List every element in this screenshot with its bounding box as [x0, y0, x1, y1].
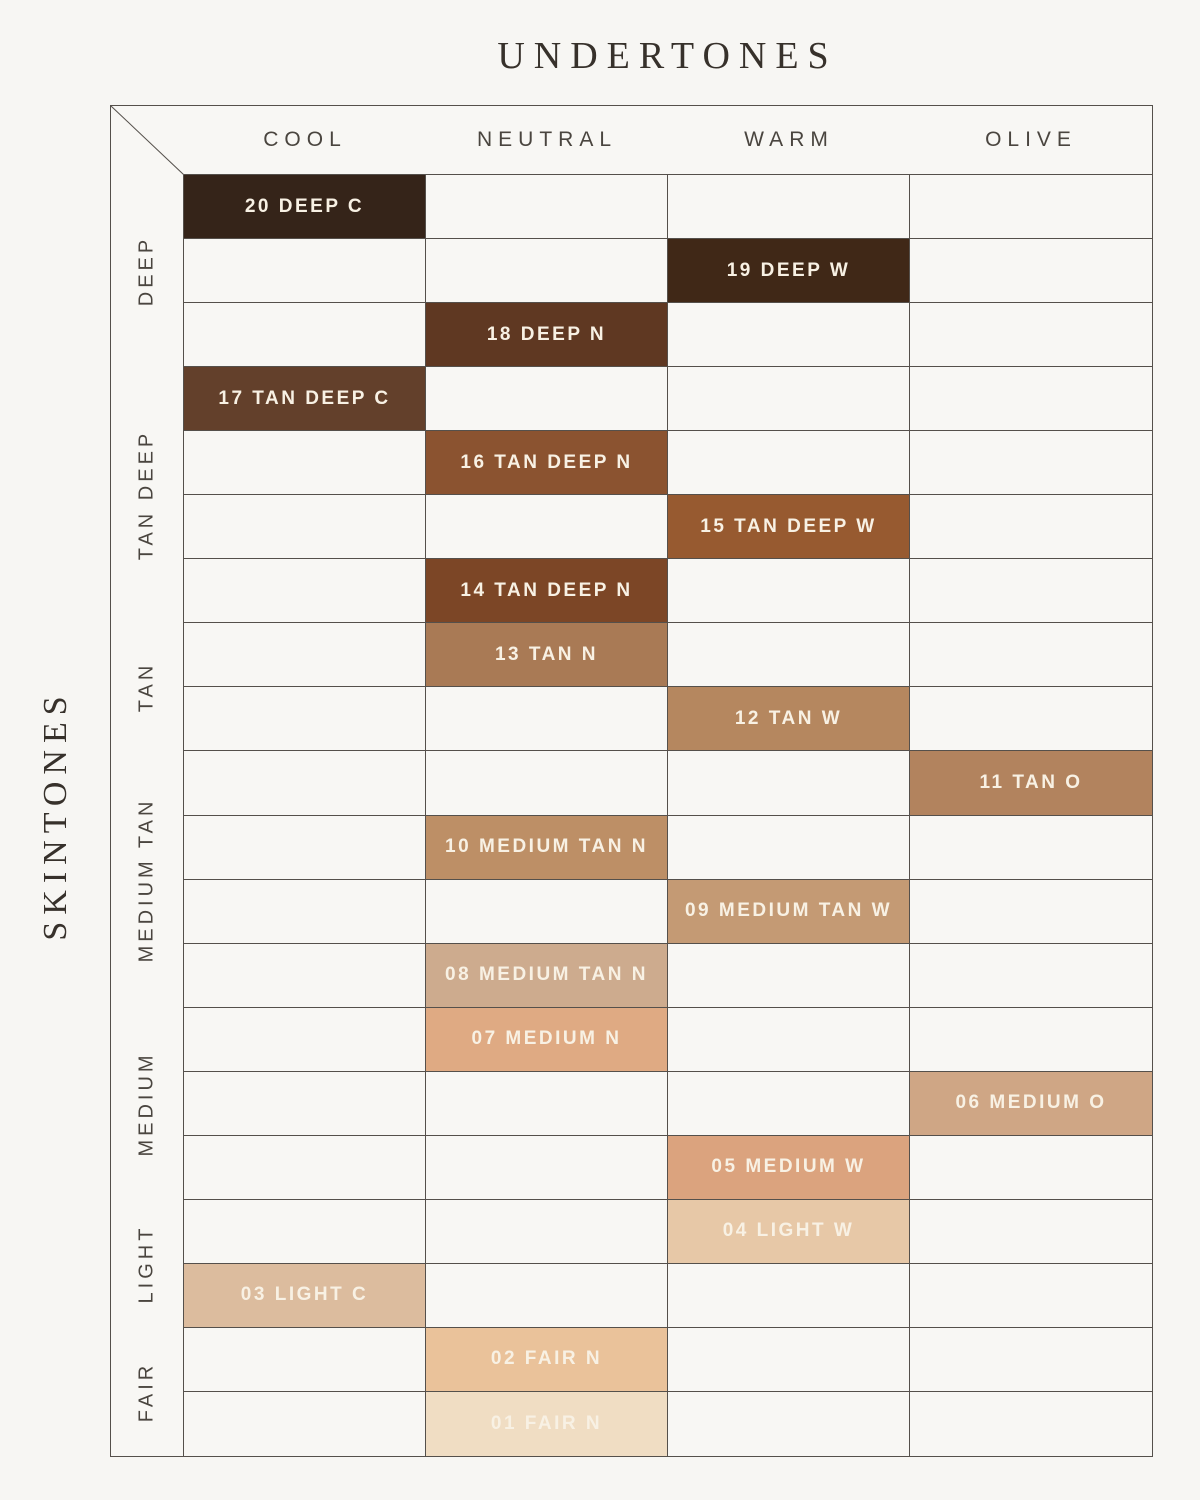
empty-cell: [668, 175, 910, 239]
empty-cell: [184, 623, 426, 687]
empty-cell: [184, 751, 426, 815]
empty-cell: [910, 1392, 1152, 1456]
corner-cell: [111, 106, 184, 175]
shade-label: 02 FAIR N: [491, 1348, 602, 1370]
empty-cell: [426, 1072, 668, 1136]
empty-cell: [426, 1200, 668, 1264]
row-group-label: TAN DEEP: [136, 430, 159, 561]
shade-label: 04 LIGHT W: [723, 1220, 855, 1242]
empty-cell: [910, 623, 1152, 687]
empty-cell: [426, 367, 668, 431]
empty-cell: [426, 751, 668, 815]
shade-swatch: 06 MEDIUM O: [910, 1072, 1152, 1136]
row-group-label: TAN: [136, 662, 159, 713]
empty-cell: [668, 1264, 910, 1328]
empty-cell: [184, 880, 426, 944]
empty-cell: [910, 495, 1152, 559]
shade-swatch: 20 DEEP C: [184, 175, 426, 239]
shade-chart-page: UNDERTONES SKINTONES COOL NEUTRAL WARM O…: [0, 0, 1200, 1500]
shade-label: 13 TAN N: [495, 644, 598, 666]
empty-cell: [184, 1200, 426, 1264]
empty-cell: [668, 1328, 910, 1392]
diagonal-divider-line: [111, 106, 184, 175]
shade-swatch: 16 TAN DEEP N: [426, 431, 668, 495]
empty-cell: [910, 1008, 1152, 1072]
shade-swatch: 13 TAN N: [426, 623, 668, 687]
row-group-label: MEDIUM TAN: [136, 797, 159, 962]
column-header-cool: COOL: [184, 106, 426, 175]
empty-cell: [668, 1072, 910, 1136]
empty-cell: [184, 239, 426, 303]
empty-cell: [668, 816, 910, 880]
shade-label: 09 MEDIUM TAN W: [685, 900, 892, 922]
empty-cell: [910, 1328, 1152, 1392]
empty-cell: [184, 303, 426, 367]
shade-swatch: 03 LIGHT C: [184, 1264, 426, 1328]
empty-cell: [668, 303, 910, 367]
empty-cell: [910, 1200, 1152, 1264]
empty-cell: [668, 559, 910, 623]
empty-cell: [184, 687, 426, 751]
shade-label: 10 MEDIUM TAN N: [445, 836, 648, 858]
empty-cell: [184, 944, 426, 1008]
row-group-medium: MEDIUM: [111, 1008, 184, 1200]
empty-cell: [184, 495, 426, 559]
empty-cell: [910, 880, 1152, 944]
shade-swatch: 15 TAN DEEP W: [668, 495, 910, 559]
shade-label: 16 TAN DEEP N: [460, 452, 632, 474]
row-group-label: FAIR: [136, 1362, 159, 1422]
row-group-label: DEEP: [136, 236, 159, 306]
empty-cell: [910, 1136, 1152, 1200]
empty-cell: [184, 1072, 426, 1136]
empty-cell: [910, 944, 1152, 1008]
empty-cell: [910, 816, 1152, 880]
empty-cell: [910, 367, 1152, 431]
column-header-neutral: NEUTRAL: [426, 106, 668, 175]
shade-label: 12 TAN W: [735, 708, 842, 730]
shade-swatch: 05 MEDIUM W: [668, 1136, 910, 1200]
shade-label: 18 DEEP N: [487, 324, 606, 346]
shade-label: 05 MEDIUM W: [711, 1156, 865, 1178]
shade-label: 06 MEDIUM O: [955, 1092, 1106, 1114]
shade-swatch: 12 TAN W: [668, 687, 910, 751]
empty-cell: [426, 687, 668, 751]
skintones-axis-title: SKINTONES: [37, 689, 75, 940]
empty-cell: [668, 1392, 910, 1456]
empty-cell: [910, 431, 1152, 495]
empty-cell: [910, 1264, 1152, 1328]
empty-cell: [184, 1328, 426, 1392]
empty-cell: [910, 303, 1152, 367]
row-group-label: MEDIUM: [136, 1051, 159, 1156]
shade-label: 01 FAIR N: [491, 1413, 602, 1435]
shade-swatch: 09 MEDIUM TAN W: [668, 880, 910, 944]
shade-swatch: 04 LIGHT W: [668, 1200, 910, 1264]
row-group-light: LIGHT: [111, 1200, 184, 1328]
shade-swatch: 17 TAN DEEP C: [184, 367, 426, 431]
empty-cell: [426, 1136, 668, 1200]
row-group-medium-tan: MEDIUM TAN: [111, 751, 184, 1007]
shade-swatch: 18 DEEP N: [426, 303, 668, 367]
empty-cell: [910, 559, 1152, 623]
shade-swatch: 11 TAN O: [910, 751, 1152, 815]
undertones-axis-title: UNDERTONES: [183, 34, 1152, 78]
empty-cell: [668, 431, 910, 495]
shade-swatch: 01 FAIR N: [426, 1392, 668, 1456]
shade-label: 15 TAN DEEP W: [700, 516, 876, 538]
shade-label: 11 TAN O: [979, 772, 1082, 794]
empty-cell: [426, 880, 668, 944]
empty-cell: [668, 367, 910, 431]
empty-cell: [184, 1392, 426, 1456]
shade-swatch: 14 TAN DEEP N: [426, 559, 668, 623]
shade-swatch: 10 MEDIUM TAN N: [426, 816, 668, 880]
empty-cell: [910, 175, 1152, 239]
shade-swatch: 19 DEEP W: [668, 239, 910, 303]
shade-label: 07 MEDIUM N: [472, 1028, 622, 1050]
row-group-deep: DEEP: [111, 175, 184, 367]
shade-label: 20 DEEP C: [245, 196, 364, 218]
empty-cell: [668, 1008, 910, 1072]
shade-swatch: 08 MEDIUM TAN N: [426, 944, 668, 1008]
shade-matrix: COOL NEUTRAL WARM OLIVE DEEP TAN DEEP TA…: [110, 105, 1153, 1457]
column-header-olive: OLIVE: [910, 106, 1152, 175]
empty-cell: [184, 559, 426, 623]
empty-cell: [426, 175, 668, 239]
column-header-warm: WARM: [668, 106, 910, 175]
row-group-tan-deep: TAN DEEP: [111, 367, 184, 623]
empty-cell: [426, 239, 668, 303]
empty-cell: [184, 816, 426, 880]
row-group-tan: TAN: [111, 623, 184, 751]
shade-label: 17 TAN DEEP C: [218, 388, 390, 410]
empty-cell: [910, 687, 1152, 751]
shade-swatch: 07 MEDIUM N: [426, 1008, 668, 1072]
shade-label: 03 LIGHT C: [241, 1284, 368, 1306]
empty-cell: [668, 751, 910, 815]
shade-label: 14 TAN DEEP N: [460, 580, 632, 602]
empty-cell: [184, 1008, 426, 1072]
empty-cell: [184, 1136, 426, 1200]
empty-cell: [426, 1264, 668, 1328]
empty-cell: [668, 623, 910, 687]
row-group-label: LIGHT: [136, 1224, 159, 1303]
empty-cell: [910, 239, 1152, 303]
row-group-fair: FAIR: [111, 1328, 184, 1456]
empty-cell: [668, 944, 910, 1008]
shade-label: 08 MEDIUM TAN N: [445, 964, 648, 986]
shade-label: 19 DEEP W: [727, 260, 851, 282]
empty-cell: [184, 431, 426, 495]
empty-cell: [426, 495, 668, 559]
shade-swatch: 02 FAIR N: [426, 1328, 668, 1392]
